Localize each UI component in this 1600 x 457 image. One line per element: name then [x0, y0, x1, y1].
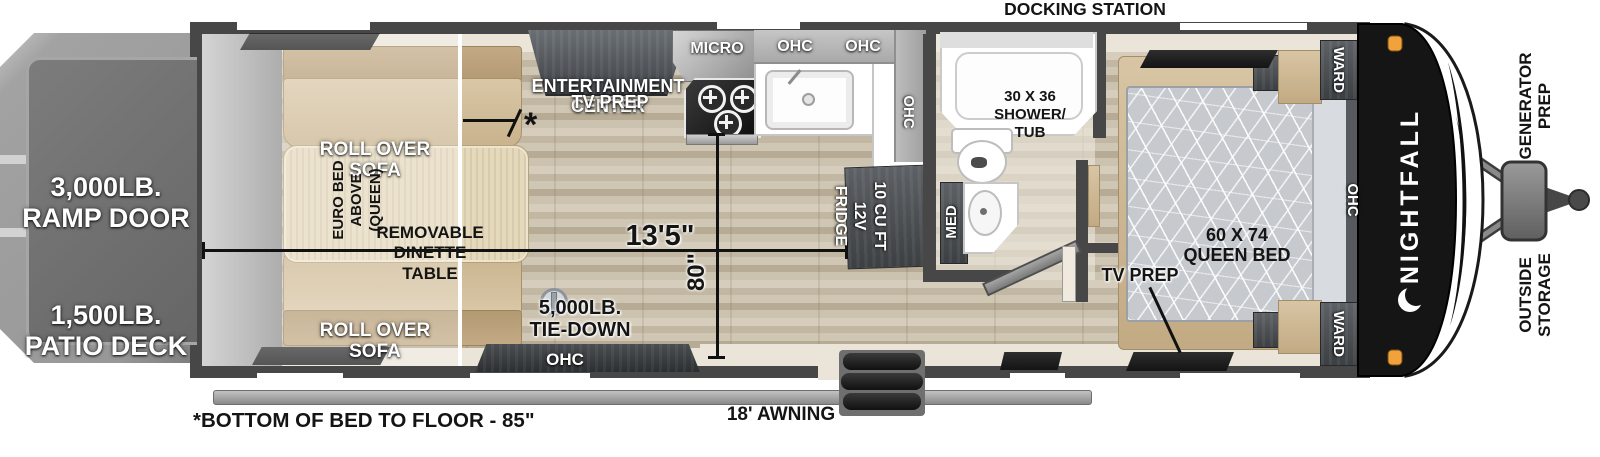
brand-wordmark: NIGHTFALL [1396, 108, 1424, 284]
entry-step [843, 353, 921, 370]
dinette-label: REMOVABLEDINETTETABLE [355, 182, 505, 325]
fridge-label: 10 CU FT12VFRIDGE [849, 168, 927, 264]
bedroom-tv-window [1126, 352, 1234, 371]
bed-pillow-band [1312, 90, 1348, 314]
nightstand-top [1278, 50, 1322, 104]
shower-tub-rim [940, 32, 1093, 48]
ward-label: WARD [1330, 307, 1346, 361]
entry-step [841, 373, 923, 390]
width-dim-cap [708, 133, 725, 136]
hall-bottom-window [1000, 352, 1062, 370]
asterisk-leader-line [463, 119, 516, 122]
window-segment [237, 22, 370, 30]
bedroom-wall-cabinet [1088, 165, 1100, 227]
length-dim-cap [202, 242, 205, 259]
sink-drain [802, 93, 815, 106]
shower-label: 30 X 36SHOWER/TUB [975, 53, 1085, 177]
window-segment [1010, 373, 1065, 380]
step-label: ALUMINUMSTABLE STEP [812, 422, 942, 457]
entry-step [843, 393, 921, 410]
tie-down-label: 5,000LB.TIE-DOWN [495, 252, 665, 386]
tv-prep-bedroom-label: TV PREP [1085, 265, 1195, 285]
patio-deck-label: 1,500LB.PATIO DECK [20, 240, 192, 421]
queen-bed-label: 60 X 74QUEEN BED [1162, 185, 1312, 306]
nightstand-bottom [1278, 300, 1322, 354]
stove-cooktop [684, 78, 761, 138]
window-segment [1180, 373, 1300, 380]
width-dim-cap [708, 356, 725, 359]
nightstand-dark-bottom [1253, 312, 1281, 348]
window-segment [717, 22, 800, 29]
bed-height-footnote: *BOTTOM OF BED TO FLOOR - 85" [193, 410, 535, 433]
burner-icon [698, 85, 726, 113]
width-dim-label: 80" [684, 247, 710, 297]
marker-light [1388, 350, 1402, 365]
bed-ohc-label: OHC [1344, 178, 1360, 222]
hitch-ball [1569, 190, 1589, 210]
bedroom-door [1062, 246, 1076, 302]
bath-faucet-dot [980, 208, 987, 215]
outside-storage-label: OUTSIDESTORAGE [1478, 252, 1516, 338]
med-label: MED [944, 192, 962, 252]
ohc-label: OHC [838, 38, 888, 56]
bedroom-top-window [1140, 50, 1278, 68]
ohc-label-vertical: OHC [900, 92, 916, 132]
micro-label: MICRO [678, 40, 756, 58]
docking-station-label: DOCKING STATION [985, 0, 1185, 20]
generator-prep-label: GENERATORPREP [1478, 50, 1516, 162]
euro-bed-label: EURO BEDABOVE(QUEEN) [292, 152, 352, 248]
ward-label: WARD [1330, 43, 1346, 97]
floorplan-canvas: 3,000LB.RAMP DOOR 1,500LB.PATIO DECK [0, 0, 1600, 457]
window-segment [1180, 23, 1307, 30]
marker-light [1388, 36, 1402, 51]
propane-box [1502, 162, 1546, 240]
ohc-label: OHC [770, 38, 820, 56]
tv-prep-living-label: TV PREP [555, 92, 665, 112]
